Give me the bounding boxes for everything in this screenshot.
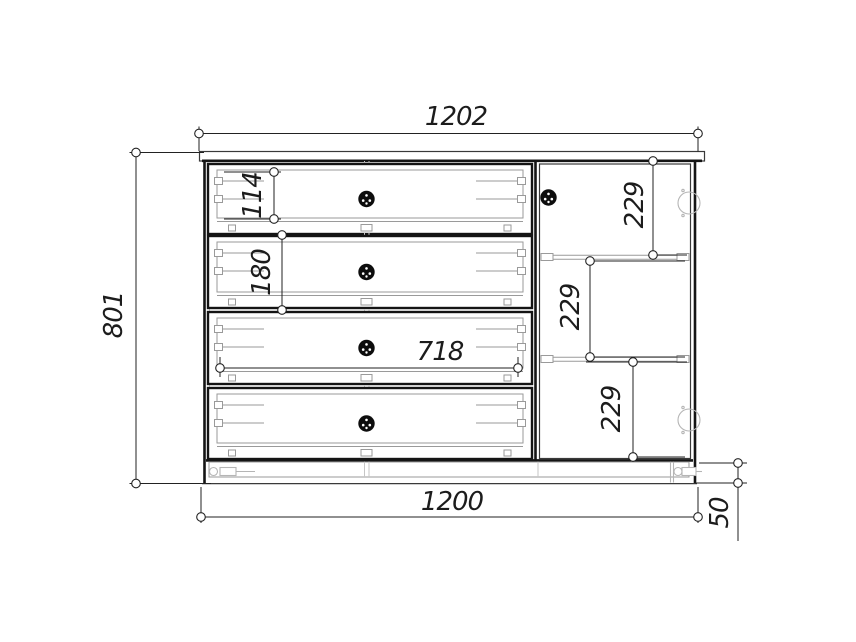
drawer-knob-icon [358, 340, 374, 356]
cabinet-technical-drawing: 1202 801 114 180 [0, 0, 856, 642]
drawer-knob-icon [358, 264, 374, 280]
drawer-knob-icon [358, 191, 374, 207]
drawer-knob-icon [358, 415, 374, 431]
dim-label-drawer1-box-height: 114 [238, 172, 268, 219]
plinth-bolt-left-icon [210, 468, 256, 476]
drawer-4 [208, 385, 532, 462]
cad-drawing-canvas: 1202 801 114 180 [0, 0, 856, 642]
door-knob-icon [540, 189, 556, 205]
dim-label-door-section-top: 229 [620, 182, 650, 229]
drawer-3 [208, 309, 532, 387]
plinth [206, 460, 702, 482]
dim-plinth-height: 50 [695, 459, 747, 541]
dim-label-bottom-width: 1200 [421, 487, 484, 517]
dim-label-overall-height: 801 [99, 292, 129, 339]
top-panel [200, 152, 705, 162]
dim-bottom-width: 1200 [197, 487, 703, 523]
dim-label-drawer2-box-height: 180 [247, 249, 277, 296]
plinth-bolt-right-icon [671, 462, 703, 483]
dim-label-top-width: 1202 [425, 102, 487, 132]
dim-top-width: 1202 [195, 102, 703, 152]
dim-label-inner-width: 718 [417, 337, 464, 367]
dim-label-plinth-height: 50 [705, 497, 735, 529]
dim-label-door-section-bottom: 229 [597, 386, 627, 433]
dim-overall-height: 801 [99, 148, 211, 488]
dim-label-door-section-middle: 229 [556, 284, 586, 331]
